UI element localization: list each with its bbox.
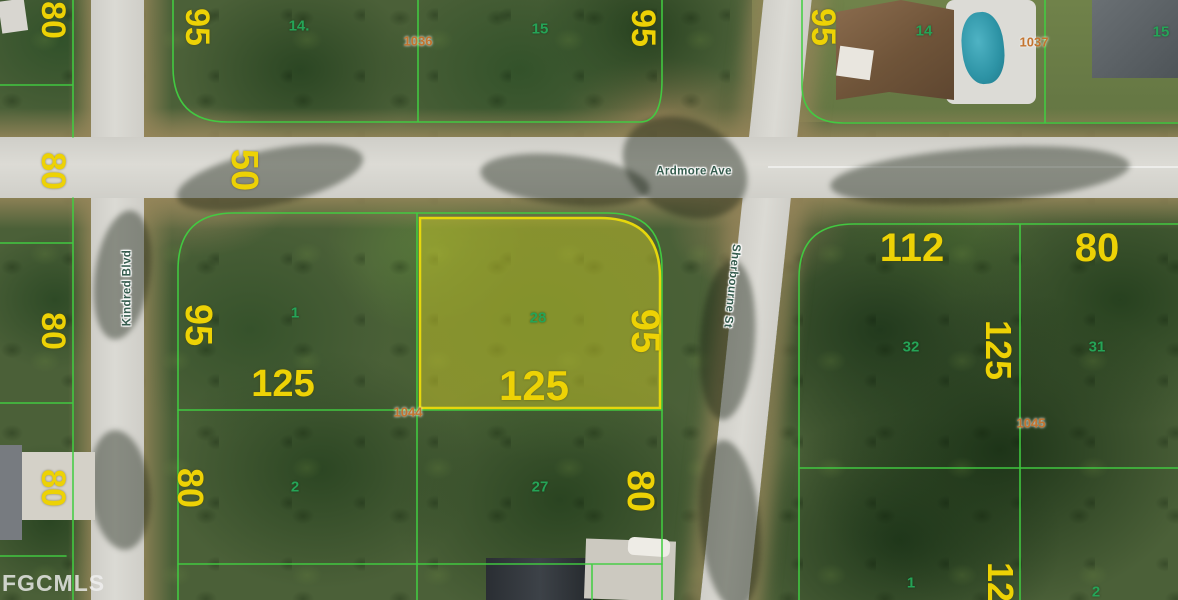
lot-number-label: 15 (532, 22, 549, 37)
parcel-id-label: 1044 (394, 406, 423, 419)
dimension-label: 125 (982, 562, 1018, 600)
lot-number-label: 14 (916, 24, 933, 39)
lot-number-label: 1 (907, 576, 915, 591)
lot-number-label: 28 (530, 311, 547, 326)
dimension-label: 95 (806, 8, 840, 46)
dimension-label: 80 (36, 469, 70, 507)
dimension-label: 80 (621, 470, 659, 512)
street-label-ardmore-ave: Ardmore Ave (656, 166, 732, 178)
dimension-label: 125 (980, 320, 1016, 380)
watermark-fgcmls: FGCMLS (2, 570, 105, 597)
dimension-label: 80 (36, 152, 70, 190)
labels-layer: 8080808095959550959512512580801128012512… (0, 0, 1178, 600)
dimension-label: 80 (1075, 228, 1120, 268)
dimension-label: 95 (179, 304, 217, 346)
dimension-label: 125 (251, 365, 314, 403)
dimension-label: 125 (499, 365, 569, 407)
lot-number-label: 2 (291, 480, 299, 495)
street-label-kindred-blvd: Kindred Blvd (122, 250, 134, 326)
lot-number-label: 15 (1153, 25, 1170, 40)
dimension-label: 50 (225, 149, 263, 191)
lot-number-label: 32 (903, 340, 920, 355)
lot-number-label: 14. (289, 19, 310, 34)
aerial-parcel-map-photo: 8080808095959550959512512580801128012512… (0, 0, 1178, 600)
lot-number-label: 1 (291, 306, 299, 321)
dimension-label: 95 (625, 309, 665, 354)
dimension-label: 95 (180, 8, 214, 46)
lot-number-label: 2 (1092, 585, 1100, 600)
dimension-label: 95 (626, 9, 660, 47)
dimension-label: 80 (172, 468, 208, 508)
dimension-label: 80 (36, 312, 70, 350)
dimension-label: 80 (36, 1, 70, 39)
lot-number-label: 31 (1089, 340, 1106, 355)
parcel-id-label: 1037 (1020, 36, 1049, 49)
parcel-id-label: 1045 (1017, 417, 1046, 430)
parcel-id-label: 1036 (404, 35, 433, 48)
dimension-label: 112 (880, 228, 945, 268)
lot-number-label: 27 (532, 480, 549, 495)
